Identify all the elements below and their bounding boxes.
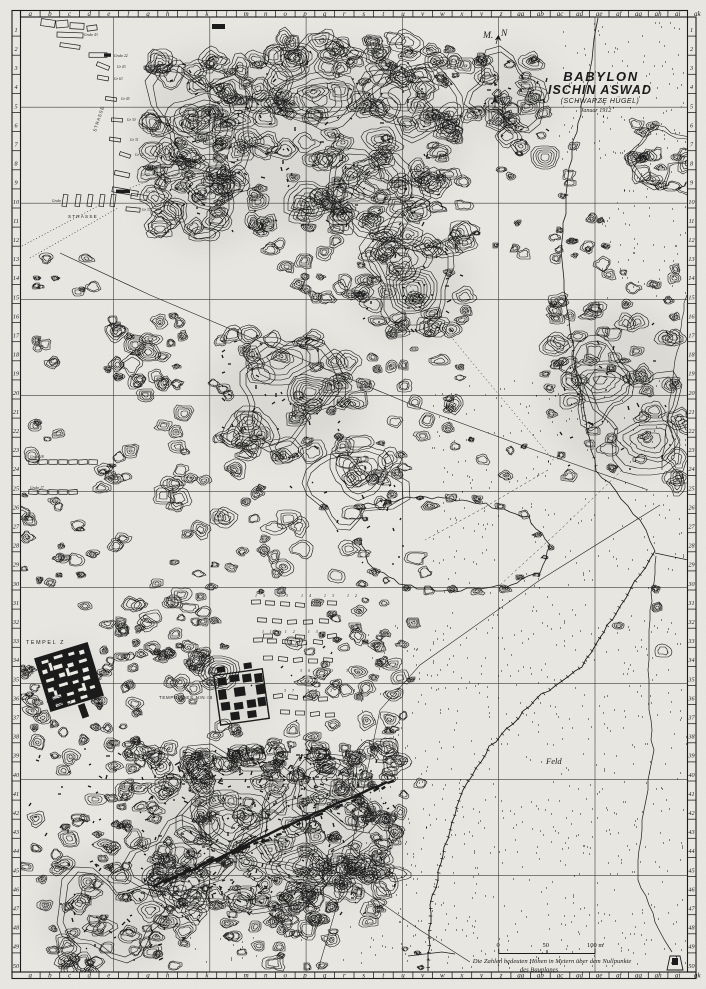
svg-text:Gr 45: Gr 45 bbox=[121, 97, 130, 101]
svg-text:16: 16 bbox=[688, 313, 695, 320]
svg-text:50: 50 bbox=[13, 963, 20, 970]
svg-text:3: 3 bbox=[689, 65, 693, 72]
svg-text:l: l bbox=[226, 971, 228, 979]
svg-text:18: 18 bbox=[13, 352, 20, 359]
svg-text:ai: ai bbox=[675, 971, 681, 979]
svg-text:14: 14 bbox=[13, 275, 19, 282]
svg-text:s: s bbox=[362, 971, 365, 979]
svg-text:ak: ak bbox=[694, 10, 702, 18]
svg-text:4: 4 bbox=[14, 84, 17, 91]
svg-text:49: 49 bbox=[13, 944, 19, 951]
svg-text:b: b bbox=[48, 10, 52, 18]
svg-text:34: 34 bbox=[687, 657, 694, 664]
svg-text:Gr 36: Gr 36 bbox=[146, 190, 155, 194]
svg-text:33: 33 bbox=[687, 638, 694, 645]
svg-text:39: 39 bbox=[12, 753, 19, 760]
svg-text:47: 47 bbox=[13, 906, 20, 913]
svg-text:42: 42 bbox=[688, 810, 694, 817]
svg-text:39: 39 bbox=[687, 753, 694, 760]
svg-text:12: 12 bbox=[13, 237, 19, 244]
svg-text:10: 10 bbox=[688, 199, 695, 206]
svg-text:ab: ab bbox=[537, 10, 545, 18]
svg-text:p: p bbox=[302, 10, 307, 18]
svg-text:33: 33 bbox=[12, 638, 19, 645]
svg-text:e: e bbox=[107, 971, 110, 979]
svg-text:g: g bbox=[146, 10, 150, 18]
svg-text:w: w bbox=[440, 971, 445, 979]
svg-text:48: 48 bbox=[13, 925, 20, 932]
svg-text:13: 13 bbox=[13, 256, 19, 263]
svg-text:23: 23 bbox=[13, 447, 19, 454]
svg-text:1: 1 bbox=[14, 27, 17, 34]
svg-text:ad: ad bbox=[576, 971, 584, 979]
svg-text:25: 25 bbox=[13, 485, 19, 492]
svg-text:41: 41 bbox=[13, 791, 19, 798]
svg-text:37: 37 bbox=[687, 715, 695, 722]
svg-text:24: 24 bbox=[688, 466, 694, 473]
svg-text:s: s bbox=[362, 10, 365, 18]
svg-text:1: 1 bbox=[690, 27, 693, 34]
svg-text:b: b bbox=[48, 971, 52, 979]
svg-text:(SCHWARZE HÜGEL): (SCHWARZE HÜGEL) bbox=[561, 97, 640, 105]
svg-text:ae: ae bbox=[596, 10, 603, 18]
svg-text:20: 20 bbox=[688, 390, 695, 397]
svg-text:24: 24 bbox=[13, 466, 19, 473]
svg-text:32: 32 bbox=[12, 619, 19, 626]
svg-text:M.: M. bbox=[482, 31, 493, 41]
svg-text:4: 4 bbox=[690, 84, 693, 91]
svg-text:2: 2 bbox=[690, 46, 693, 53]
svg-text:o: o bbox=[284, 971, 288, 979]
svg-text:19: 19 bbox=[13, 371, 19, 378]
svg-text:Gr 63: Gr 63 bbox=[114, 77, 123, 81]
svg-text:48: 48 bbox=[688, 925, 695, 932]
svg-text:des Bauplanes: des Bauplanes bbox=[520, 967, 559, 974]
svg-text:ae: ae bbox=[596, 971, 603, 979]
svg-text:m: m bbox=[244, 10, 249, 18]
svg-text:ah: ah bbox=[655, 971, 663, 979]
svg-text:Grube 18: Grube 18 bbox=[30, 455, 44, 459]
svg-text:28: 28 bbox=[688, 543, 695, 550]
svg-text:21: 21 bbox=[13, 409, 19, 416]
svg-text:45: 45 bbox=[13, 867, 19, 874]
svg-text:Gr 43: Gr 43 bbox=[117, 65, 126, 69]
svg-text:35: 35 bbox=[12, 676, 19, 683]
svg-text:25: 25 bbox=[688, 485, 694, 492]
svg-text:46: 46 bbox=[688, 886, 695, 893]
svg-text:47: 47 bbox=[688, 906, 695, 913]
svg-text:3: 3 bbox=[13, 65, 17, 72]
svg-text:BABYLON: BABYLON bbox=[563, 69, 638, 84]
svg-text:n: n bbox=[264, 10, 268, 18]
svg-text:49: 49 bbox=[688, 944, 694, 951]
svg-text:36: 36 bbox=[687, 695, 695, 702]
svg-text:15 13 14 13 12: 15 13 14 13 12 bbox=[255, 593, 363, 598]
svg-text:ac: ac bbox=[557, 10, 565, 18]
svg-text:p: p bbox=[302, 971, 307, 979]
svg-text:Feld: Feld bbox=[545, 756, 562, 766]
svg-text:z: z bbox=[499, 971, 503, 979]
svg-text:d: d bbox=[87, 10, 91, 18]
svg-text:Grube 43: Grube 43 bbox=[84, 33, 98, 37]
svg-text:5: 5 bbox=[14, 103, 17, 110]
svg-text:12: 12 bbox=[688, 237, 694, 244]
svg-text:20: 20 bbox=[13, 390, 20, 397]
svg-text:ad: ad bbox=[576, 10, 584, 18]
svg-text:aa: aa bbox=[517, 10, 525, 18]
svg-text:d: d bbox=[87, 971, 91, 979]
svg-text:m: m bbox=[244, 971, 249, 979]
svg-text:29: 29 bbox=[688, 562, 694, 569]
svg-text:46: 46 bbox=[13, 886, 20, 893]
svg-text:u: u bbox=[401, 10, 405, 18]
svg-text:r: r bbox=[343, 10, 346, 18]
svg-text:a: a bbox=[29, 10, 33, 18]
svg-text:9: 9 bbox=[14, 180, 17, 187]
svg-text:26: 26 bbox=[688, 504, 695, 511]
svg-text:N: N bbox=[500, 29, 508, 39]
svg-text:14: 14 bbox=[688, 275, 694, 282]
svg-text:l: l bbox=[226, 10, 228, 18]
svg-text:2: 2 bbox=[14, 46, 17, 53]
svg-text:32: 32 bbox=[687, 619, 694, 626]
svg-text:50: 50 bbox=[688, 963, 695, 970]
svg-text:Gr 31: Gr 31 bbox=[130, 138, 139, 142]
svg-text:h: h bbox=[166, 10, 170, 18]
svg-text:w: w bbox=[440, 10, 445, 18]
svg-text:Die Zahlen bedeuten Höhen in M: Die Zahlen bedeuten Höhen in Metern über… bbox=[472, 958, 632, 965]
svg-text:17: 17 bbox=[688, 333, 695, 340]
svg-text:36: 36 bbox=[12, 695, 20, 702]
svg-text:11: 11 bbox=[689, 218, 695, 225]
svg-text:28: 28 bbox=[13, 543, 20, 550]
svg-text:40: 40 bbox=[13, 772, 20, 779]
svg-text:a: a bbox=[29, 971, 33, 979]
svg-text:h: h bbox=[166, 971, 170, 979]
svg-text:ISCHIN ASWAD: ISCHIN ASWAD bbox=[548, 83, 652, 97]
svg-text:i: i bbox=[186, 10, 188, 18]
svg-text:STRASSE: STRASSE bbox=[68, 214, 98, 219]
svg-text:41: 41 bbox=[688, 791, 694, 798]
svg-text:u: u bbox=[401, 971, 405, 979]
svg-text:100 m: 100 m bbox=[587, 942, 603, 949]
svg-text:q: q bbox=[323, 10, 327, 18]
svg-text:34: 34 bbox=[12, 657, 19, 664]
svg-text:g: g bbox=[146, 971, 150, 979]
svg-text:42: 42 bbox=[13, 810, 19, 817]
svg-text:i: i bbox=[186, 971, 188, 979]
svg-text:40: 40 bbox=[688, 772, 695, 779]
svg-text:ak: ak bbox=[694, 971, 702, 979]
svg-text:Grube: Grube bbox=[52, 199, 62, 203]
svg-text:Grube 22: Grube 22 bbox=[114, 54, 128, 58]
svg-text:e: e bbox=[107, 10, 110, 18]
svg-text:Gr 37: Gr 37 bbox=[142, 208, 151, 212]
svg-text:15: 15 bbox=[13, 294, 19, 301]
svg-text:10: 10 bbox=[13, 199, 20, 206]
svg-text:29: 29 bbox=[13, 562, 19, 569]
svg-text:5: 5 bbox=[690, 103, 693, 110]
svg-text:TEMPEL DES NIN·IB: TEMPEL DES NIN·IB bbox=[159, 695, 213, 700]
svg-text:44: 44 bbox=[688, 848, 694, 855]
svg-text:ag: ag bbox=[635, 971, 643, 979]
svg-text:43: 43 bbox=[688, 829, 694, 836]
svg-text:q: q bbox=[323, 971, 327, 979]
svg-text:11 12 13: 11 12 13 bbox=[262, 629, 324, 634]
svg-text:Gr 33: Gr 33 bbox=[141, 173, 150, 177]
svg-text:11: 11 bbox=[13, 218, 19, 225]
svg-text:23: 23 bbox=[688, 447, 694, 454]
svg-text:n: n bbox=[264, 971, 268, 979]
svg-text:16: 16 bbox=[13, 313, 20, 320]
svg-text:44: 44 bbox=[13, 848, 19, 855]
svg-text:18: 18 bbox=[688, 352, 695, 359]
svg-text:9: 9 bbox=[690, 180, 693, 187]
svg-text:21: 21 bbox=[688, 409, 694, 416]
svg-text:ah: ah bbox=[655, 10, 663, 18]
svg-text:38: 38 bbox=[687, 734, 695, 741]
svg-text:15: 15 bbox=[688, 294, 694, 301]
svg-text:37: 37 bbox=[12, 715, 20, 722]
svg-text:27: 27 bbox=[13, 524, 20, 531]
svg-text:38: 38 bbox=[12, 734, 20, 741]
svg-text:50: 50 bbox=[543, 942, 550, 949]
svg-text:26: 26 bbox=[13, 504, 20, 511]
svg-text:19: 19 bbox=[688, 371, 694, 378]
svg-text:r: r bbox=[343, 971, 346, 979]
svg-text:30: 30 bbox=[12, 581, 20, 588]
svg-text:o: o bbox=[284, 10, 288, 18]
svg-text:ag: ag bbox=[635, 10, 643, 18]
svg-text:13: 13 bbox=[688, 256, 694, 263]
svg-text:TEMPEL Z: TEMPEL Z bbox=[26, 640, 65, 646]
svg-text:30: 30 bbox=[687, 581, 695, 588]
svg-text:27: 27 bbox=[688, 524, 695, 531]
svg-text:31: 31 bbox=[12, 600, 19, 607]
svg-text:43: 43 bbox=[13, 829, 19, 836]
svg-text:Januar 1912: Januar 1912 bbox=[581, 108, 612, 114]
svg-text:Gr 30: Gr 30 bbox=[127, 118, 136, 122]
svg-text:31: 31 bbox=[687, 600, 694, 607]
svg-text:45: 45 bbox=[688, 867, 694, 874]
svg-text:22: 22 bbox=[688, 428, 694, 435]
svg-text:17: 17 bbox=[13, 333, 20, 340]
svg-text:z: z bbox=[499, 10, 503, 18]
svg-text:22: 22 bbox=[13, 428, 19, 435]
svg-text:35: 35 bbox=[687, 676, 694, 683]
svg-text:0: 0 bbox=[497, 942, 500, 949]
svg-text:ai: ai bbox=[675, 10, 681, 18]
